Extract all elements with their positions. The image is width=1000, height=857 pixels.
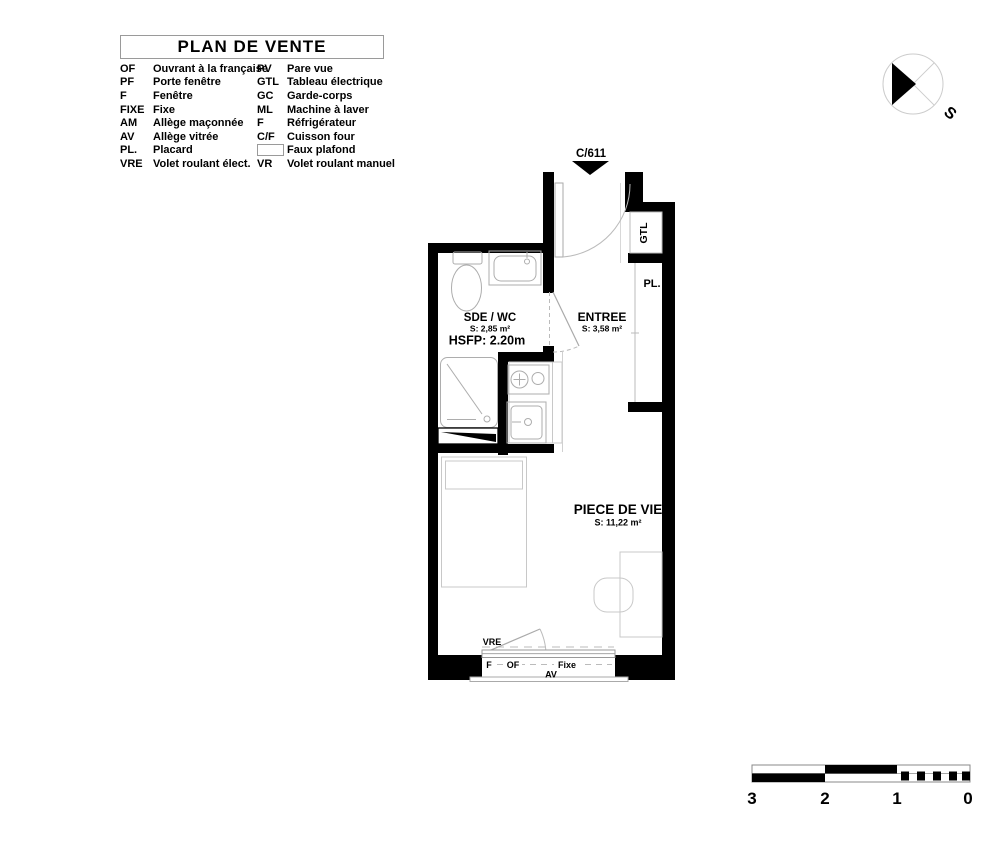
compass-south-label: S [940,104,959,124]
wall-placard-bottom [628,402,675,412]
entrance-door [555,183,630,263]
placard: PL. [631,263,661,402]
entrance-door-swing-arc [563,184,630,257]
entrance-door-leaf [555,183,563,257]
window-assembly: VRE F OF Fixe AV [470,629,628,682]
wall-right [662,202,675,680]
gtl-niche: GTL [630,212,662,253]
chair-icon [594,578,633,612]
compass: S [883,54,960,124]
sde-height-label: HSFP: 2.20m [449,334,525,348]
placard-label: PL. [643,278,660,290]
scale-bar: 3 2 1 0 [747,765,972,808]
pillow-icon [446,461,523,489]
toilet-bowl-icon [452,265,482,311]
wall-entree-left [543,172,554,293]
piece-de-vie-room-label: PIECE DE VIE [574,502,663,517]
sde-room-label: SDE / WC [464,312,516,324]
toilet-tank-icon [453,252,482,264]
sde-area-label: S: 2,85 m² [470,324,510,334]
vre-label: VRE [483,637,502,647]
sde-door-swing-arc [553,346,579,352]
entry-arrow-icon [572,161,609,175]
wall-gtl-bottom [628,253,675,263]
unit-reference-label: C/611 [576,148,607,160]
scale-tick-0: 0 [963,789,972,808]
shower-drain-icon [484,416,490,422]
floor-plan-page: PLAN DE VENTE OF Ouvrant à la française … [0,0,1000,857]
kitchenette [507,352,563,452]
scale-tick-1: 1 [892,789,901,808]
scale-tick-2: 2 [820,789,829,808]
wall-shower-bottom [438,444,502,453]
floor-plan-drawing: S C/611 [0,0,1000,857]
wall-bottom-left [428,655,482,680]
window-f-label: F [486,660,492,670]
scale-tick-3: 3 [747,789,756,808]
faucet-icon [525,259,530,264]
window-of-label: OF [507,660,520,670]
compass-needle-icon [892,63,916,105]
entree-room-label: ENTREE [578,310,627,324]
sde-door-leaf [553,292,579,346]
room-labels: SDE / WC S: 2,85 m² HSFP: 2.20m ENTREE S… [449,310,662,528]
bed-icon [442,457,527,587]
window-fixe-label: Fixe [558,660,576,670]
piece-de-vie-area-label: S: 11,22 m² [594,518,641,528]
wall-bottom-right [615,655,675,680]
desk-icon [620,552,662,637]
gtl-label: GTL [638,222,650,244]
entree-area-label: S: 3,58 m² [582,324,622,334]
window-of-swing-arc [540,629,546,653]
shower-wedge-element [438,428,498,444]
window-av-label: AV [545,670,557,680]
furniture [442,457,663,637]
wall-kitchen-bottom [500,444,554,453]
sde-door [550,292,580,352]
wall-top-right-stub [625,172,643,212]
wall-left [428,243,438,680]
